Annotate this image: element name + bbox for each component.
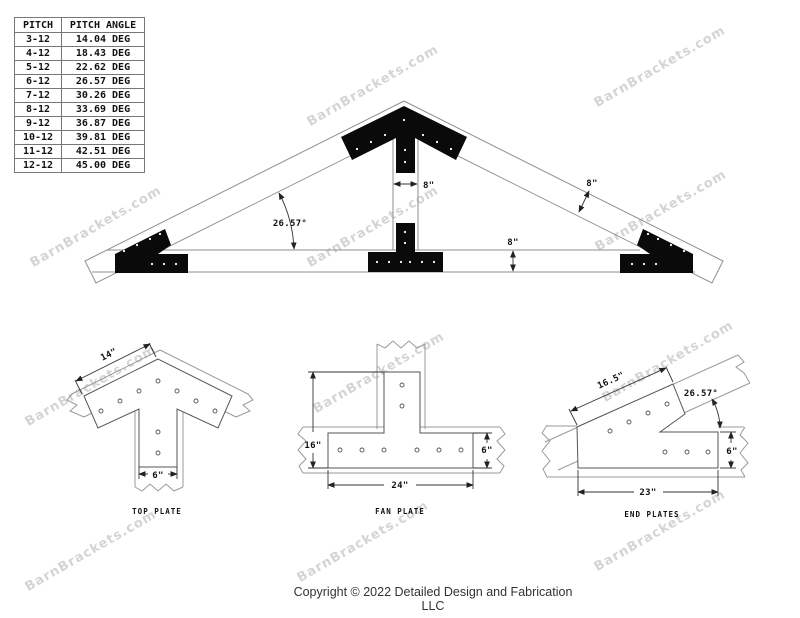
top-plate-detail: 14" 6" — [67, 343, 253, 491]
truss-angle-label: 26.57° — [273, 219, 307, 229]
fan-plate-caption: FAN PLATE — [340, 507, 460, 516]
rafter-width-label: 8" — [586, 179, 597, 189]
truss-drawing: 26.57° 8" 8" 8" — [0, 0, 800, 618]
king-post-width-label: 8" — [423, 181, 434, 191]
fan-bracket — [368, 223, 443, 272]
end-plates-detail: 16.5" 26.57° 6" 23" — [542, 355, 750, 498]
apex-bracket — [341, 106, 467, 173]
end-plates-height-dim: 6" — [726, 447, 737, 457]
fan-plate-width-dim: 24" — [391, 481, 408, 491]
truss-brackets — [115, 106, 693, 273]
left-end-bracket — [115, 229, 188, 273]
drawing-sheet: BarnBrackets.comBarnBrackets.comBarnBrac… — [0, 0, 800, 618]
copyright-text: Copyright © 2022 Detailed Design and Fab… — [283, 585, 583, 613]
end-plates-angle-dim: 26.57° — [684, 389, 718, 399]
fan-plate-height-dim: 16" — [304, 441, 321, 451]
chord-height-label: 8" — [507, 238, 518, 248]
fan-plate-detail: 16" 6" 24" — [298, 341, 505, 491]
end-plates-width-dim: 23" — [639, 488, 656, 498]
right-end-bracket — [620, 229, 693, 273]
fan-plate-bar-height-dim: 6" — [481, 446, 492, 456]
top-plate-bottom-dim: 6" — [152, 471, 163, 481]
top-plate-caption: TOP PLATE — [97, 507, 217, 516]
end-plates-caption: END PLATES — [592, 510, 712, 519]
